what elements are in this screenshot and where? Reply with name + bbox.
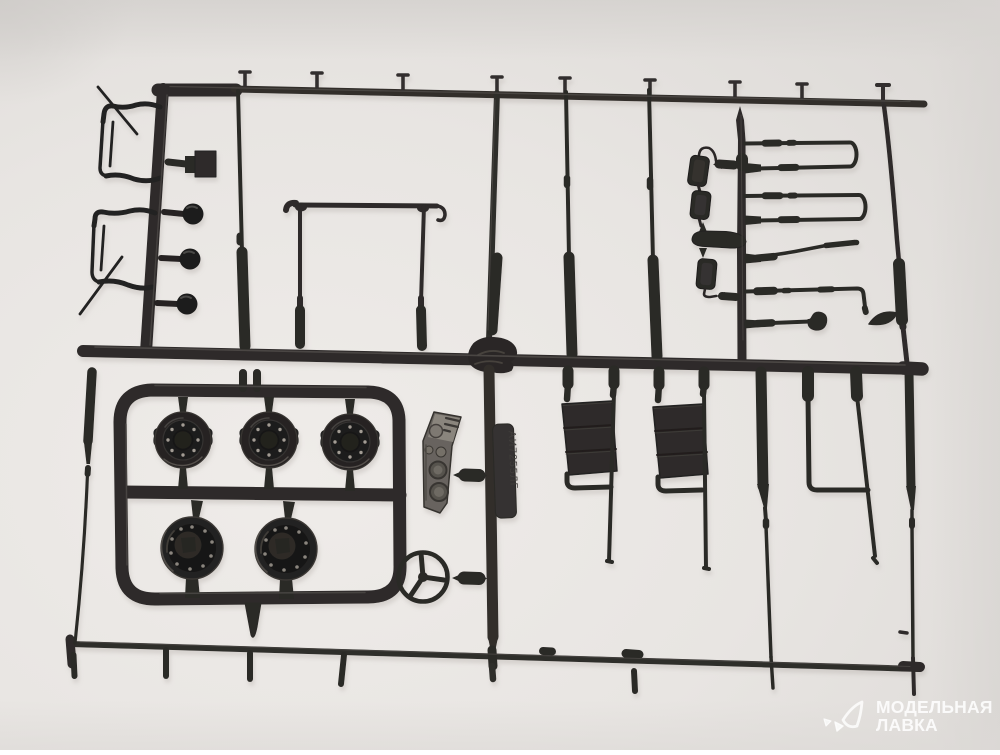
- svg-text:МОДЕЛЬНАЯ: МОДЕЛЬНАЯ: [876, 697, 993, 717]
- svg-text:ЛАВКА: ЛАВКА: [876, 715, 938, 735]
- svg-text:АИ7255ЛГ: АИ7255ЛГ: [506, 431, 520, 490]
